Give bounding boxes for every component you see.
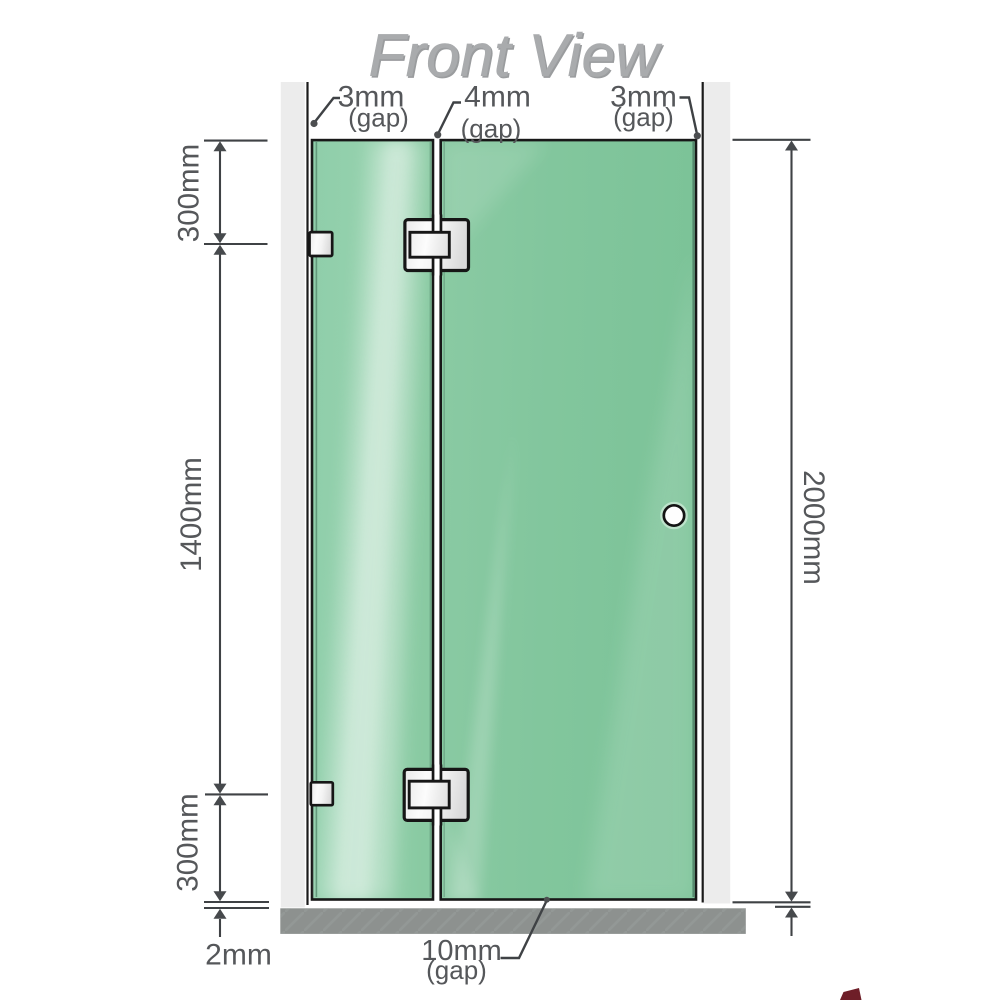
svg-text:300mm: 300mm [173, 144, 206, 242]
svg-text:(gap): (gap) [613, 102, 674, 132]
svg-text:2mm: 2mm [205, 939, 272, 972]
svg-text:300mm: 300mm [172, 793, 205, 891]
svg-text:(gap): (gap) [426, 955, 487, 985]
svg-text:(gap): (gap) [461, 114, 522, 144]
svg-text:1400mm: 1400mm [175, 457, 208, 572]
svg-text:2000mm: 2000mm [797, 470, 830, 585]
svg-text:Front View: Front View [369, 22, 663, 89]
svg-text:(gap): (gap) [348, 103, 409, 133]
svg-text:4mm: 4mm [464, 81, 531, 114]
